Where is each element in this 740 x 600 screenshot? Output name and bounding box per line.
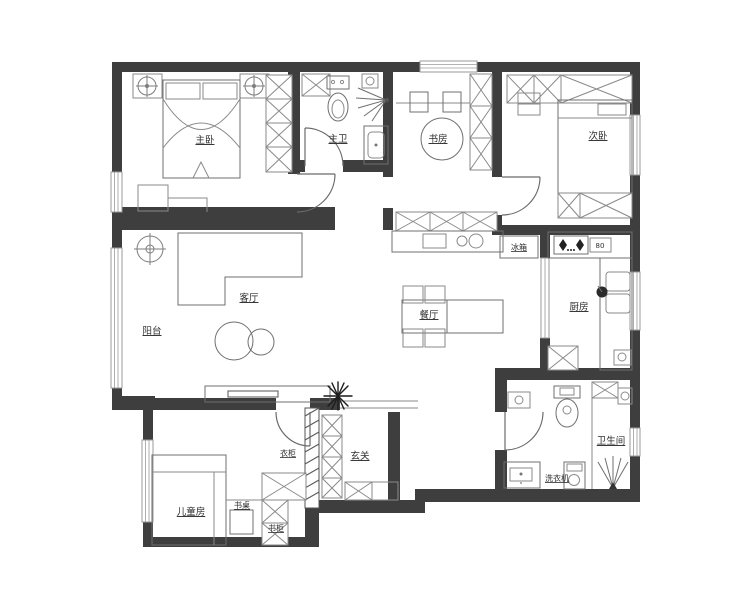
label-master-bathroom: 主卫 — [328, 133, 348, 145]
door-bathroom — [505, 412, 543, 450]
master-wardrobe — [266, 75, 292, 172]
desk-stool — [230, 510, 253, 534]
second-bedroom-furniture — [507, 75, 632, 218]
nightstand-left — [133, 74, 162, 98]
gas-stove — [554, 236, 588, 254]
window-study-top — [420, 61, 477, 72]
study-furniture — [392, 74, 503, 252]
single-bed — [558, 100, 632, 195]
washbasin-box — [362, 74, 378, 88]
label-bathroom: 卫生间 — [597, 435, 626, 447]
kitchen-side-counter — [600, 258, 632, 370]
dining-furniture — [402, 286, 503, 347]
room-labels: 主卧 主卫 书房 次卧 客厅 阳台 餐厅 厨房 玄关 儿童房 卫生间 衣柜 书桌… — [142, 130, 625, 533]
shower-spray-bathroom — [598, 456, 628, 489]
hatched-wall — [305, 408, 319, 508]
door-second-bedroom — [502, 177, 540, 215]
master-bathroom-fixtures — [302, 74, 389, 164]
window-master-left — [111, 172, 122, 212]
study-chair-2 — [443, 92, 461, 112]
label-washing-machine: 洗衣机 — [545, 473, 569, 483]
fridge: 冰箱 — [500, 236, 538, 258]
toilet-bathroom — [554, 386, 580, 427]
study-closet — [470, 74, 492, 170]
label-second-bedroom: 次卧 — [588, 130, 608, 142]
kitchen-base-cabinet — [548, 346, 578, 370]
entry-threshold — [340, 401, 418, 408]
windows — [111, 61, 640, 522]
living-room-furniture — [134, 233, 352, 410]
kitchen-fixtures: 80 冰箱 — [500, 232, 632, 370]
floor-plan-canvas: 80 冰箱 — [0, 0, 740, 600]
dining-sideboard — [447, 300, 503, 333]
coffee-table-small — [248, 329, 274, 355]
bathroom-top-cabinet — [592, 382, 618, 398]
label-master-bedroom: 主卧 — [195, 134, 215, 146]
hall-counter — [392, 231, 503, 252]
label-living-room: 客厅 — [239, 292, 259, 304]
label-children-room: 儿童房 — [177, 506, 206, 518]
label-bookcase: 书柜 — [268, 523, 284, 533]
nightstand-right — [240, 74, 269, 98]
plant — [324, 382, 352, 410]
children-wardrobe — [262, 473, 306, 500]
double-bed — [163, 80, 240, 178]
label-desk: 书桌 — [234, 500, 250, 510]
dining-chair-3 — [403, 329, 423, 347]
kitchen-drain — [614, 350, 631, 365]
bath-cabinet — [302, 74, 330, 96]
study-chair-1 — [410, 92, 428, 112]
label-wardrobe: 衣柜 — [280, 448, 296, 458]
label-study: 书房 — [428, 133, 447, 145]
bathroom-sink — [504, 462, 540, 488]
label-entry-hall: 玄关 — [350, 450, 370, 462]
ceiling-lamp — [134, 233, 166, 265]
fridge-label: 冰箱 — [511, 242, 527, 252]
entry-closet — [322, 415, 342, 498]
coffee-table-large — [215, 322, 253, 360]
window-children-left — [142, 440, 153, 522]
children-bed — [152, 455, 226, 545]
door-master-bedroom — [297, 174, 335, 212]
kitchen-sink — [597, 272, 631, 313]
stove-dimension-box: 80 — [590, 238, 611, 252]
children-bookcase — [262, 500, 288, 545]
kitchen-sliding-door — [541, 258, 549, 338]
second-bedroom-wardrobe — [507, 75, 632, 103]
hall-sideboard — [396, 212, 497, 231]
label-dining-room: 餐厅 — [419, 309, 439, 321]
bathroom-corner-box — [618, 388, 632, 404]
stove-dimension-label: 80 — [596, 242, 605, 250]
label-balcony: 阳台 — [142, 325, 161, 337]
floor-plan-svg: 80 冰箱 — [0, 0, 740, 600]
label-kitchen: 厨房 — [569, 301, 588, 313]
window-bathroom-right — [630, 428, 640, 456]
window-balcony-left — [111, 248, 122, 388]
dining-chair-4 — [425, 329, 445, 347]
water-heater-box — [508, 392, 530, 408]
second-bedroom-cabinet — [558, 193, 632, 218]
